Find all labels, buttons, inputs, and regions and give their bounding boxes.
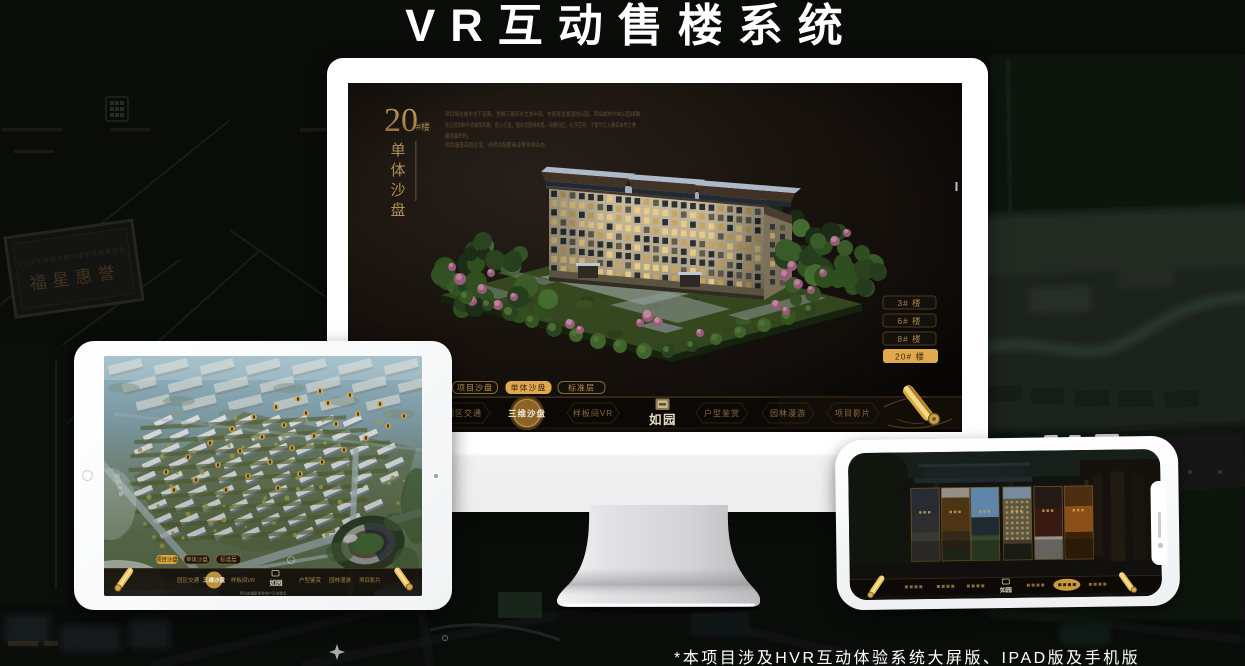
svg-text:如园: 如园 — [649, 412, 677, 427]
svg-text:项目影片: 项目影片 — [835, 408, 871, 418]
svg-text:三维沙盘: 三维沙盘 — [203, 576, 226, 584]
svg-text:项目沙盘: 项目沙盘 — [457, 383, 493, 393]
svg-text:标准层: 标准层 — [220, 556, 237, 564]
svg-text:样板间VR: 样板间VR — [231, 576, 255, 584]
svg-text:3# 楼: 3# 楼 — [897, 298, 921, 308]
svg-text:单体沙盘: 单体沙盘 — [511, 383, 547, 393]
svg-text:园区交通: 园区交通 — [177, 576, 200, 584]
svg-text:园林漫游: 园林漫游 — [770, 408, 806, 418]
svg-text:8# 楼: 8# 楼 — [897, 334, 921, 344]
svg-text:20# 楼: 20# 楼 — [895, 352, 925, 362]
svg-text:单体沙盘: 单体沙盘 — [186, 556, 209, 564]
svg-text:项目由福星惠誉地产开发建设: 项目由福星惠誉地产开发建设 — [240, 591, 287, 596]
svg-text:标准层: 标准层 — [568, 383, 595, 393]
svg-text:6# 楼: 6# 楼 — [897, 316, 921, 326]
svg-text:项目影片: 项目影片 — [359, 576, 381, 584]
svg-text:户型鉴赏: 户型鉴赏 — [299, 576, 322, 584]
svg-text:园林漫游: 园林漫游 — [329, 576, 352, 584]
svg-text:样板间VR: 样板间VR — [573, 408, 613, 418]
svg-text:如园: 如园 — [1000, 586, 1012, 594]
svg-text:三维沙盘: 三维沙盘 — [508, 409, 546, 419]
svg-text:如园: 如园 — [270, 578, 284, 587]
svg-text:项目沙盘: 项目沙盘 — [156, 556, 179, 564]
svg-text:户型鉴赏: 户型鉴赏 — [704, 408, 740, 418]
